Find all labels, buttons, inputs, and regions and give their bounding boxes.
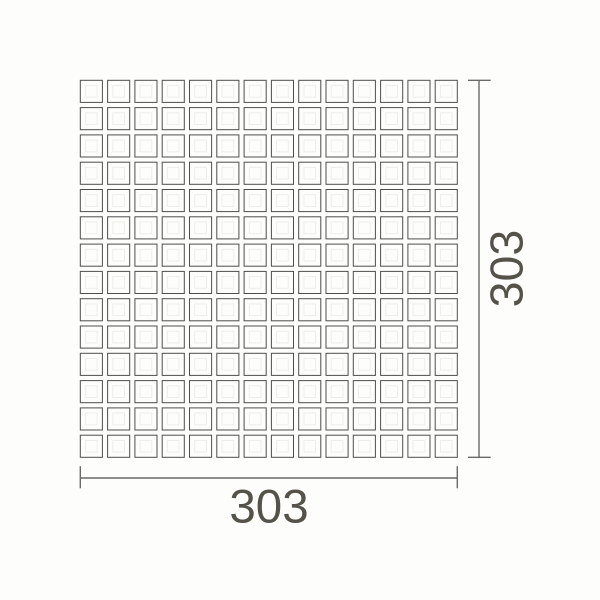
svg-text:303: 303 (481, 230, 533, 308)
svg-text:303: 303 (229, 481, 308, 534)
